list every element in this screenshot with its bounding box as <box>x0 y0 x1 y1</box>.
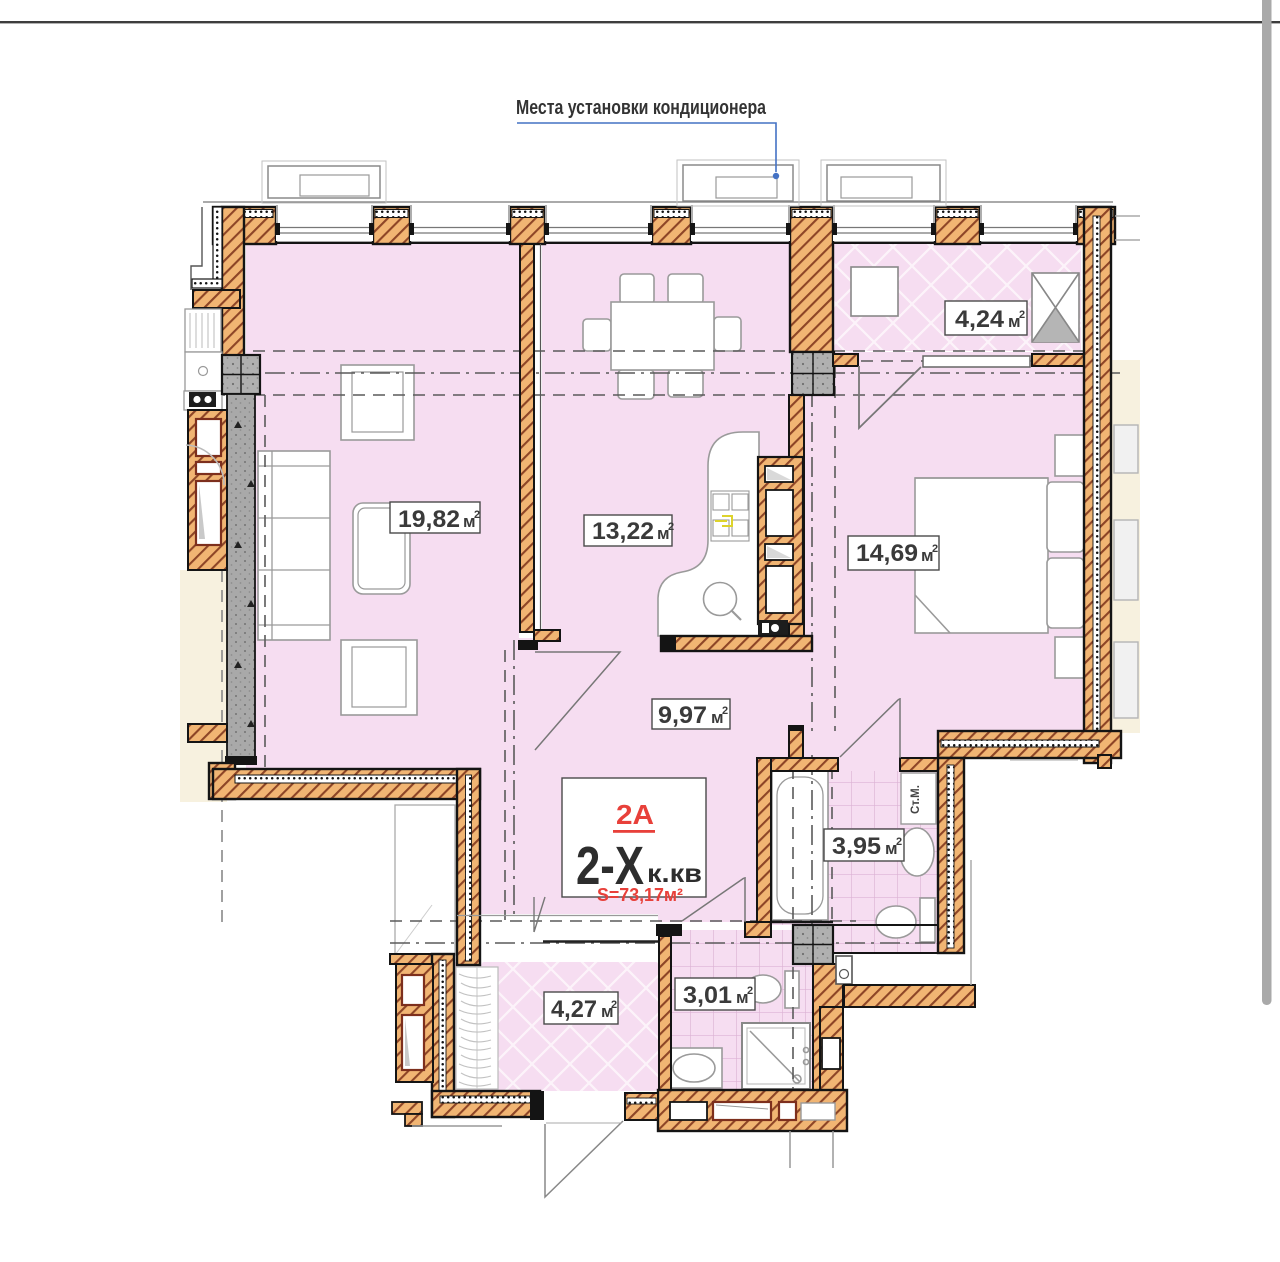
svg-text:2: 2 <box>611 999 617 1011</box>
svg-text:2: 2 <box>474 509 480 521</box>
svg-text:2: 2 <box>668 521 674 533</box>
svg-text:3,95: 3,95 <box>832 833 881 860</box>
svg-text:к.кв: к.кв <box>647 858 702 888</box>
svg-text:2: 2 <box>1019 309 1025 321</box>
svg-text:4,27: 4,27 <box>551 996 597 1023</box>
svg-text:2: 2 <box>722 705 728 717</box>
svg-text:2А: 2А <box>616 799 654 830</box>
svg-text:14,69: 14,69 <box>856 540 918 567</box>
svg-text:9,97: 9,97 <box>658 702 707 729</box>
svg-text:S=73,17м²: S=73,17м² <box>597 885 683 905</box>
svg-text:4,24: 4,24 <box>955 306 1005 333</box>
svg-text:2: 2 <box>896 836 902 848</box>
svg-text:2: 2 <box>747 985 753 997</box>
svg-text:19,82: 19,82 <box>398 506 460 533</box>
svg-text:Ст.М.: Ст.М. <box>910 785 922 814</box>
svg-text:13,22: 13,22 <box>592 518 654 545</box>
svg-text:2: 2 <box>932 543 938 555</box>
svg-text:3,01: 3,01 <box>683 982 732 1009</box>
svg-text:Места установки кондиционера: Места установки кондиционера <box>516 97 767 119</box>
